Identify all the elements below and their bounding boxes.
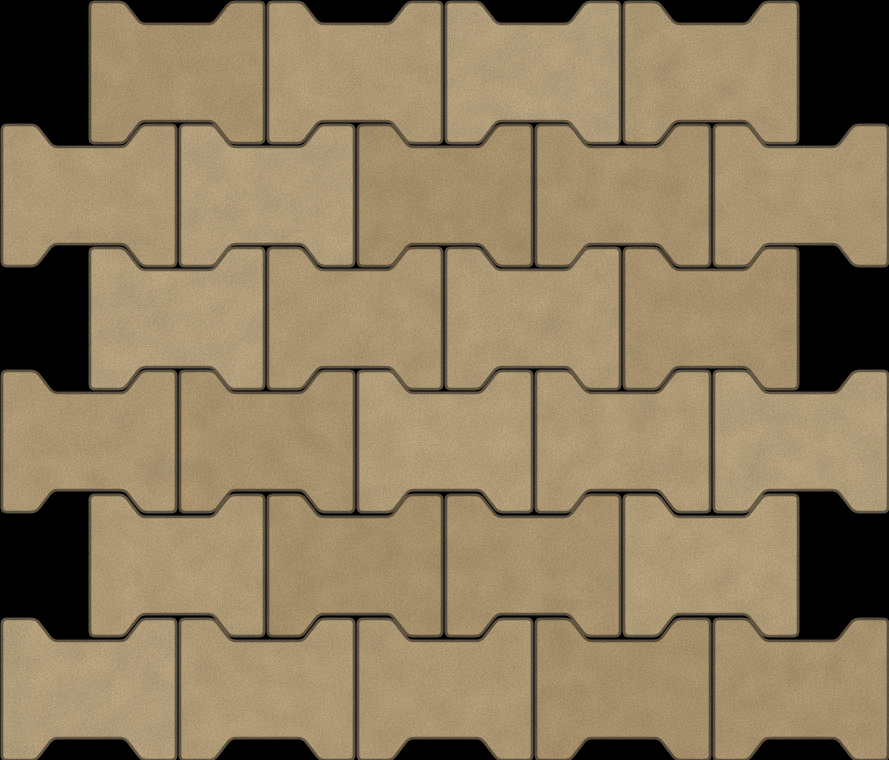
paver-pattern-image [0,0,889,760]
paver-r4-c5 [714,371,888,512]
paver-r6-c4 [536,619,710,760]
paver-r3-c4 [624,248,798,389]
paver-r2-c1 [2,125,176,266]
paver-r4-c4 [536,371,710,512]
paver-r2-c2 [180,125,354,266]
paver-r5-c4 [624,495,798,636]
paver-r4-c1 [2,371,176,512]
paver-r2-c4 [536,125,710,266]
paver-r5-c3 [446,495,620,636]
paver-r1-c4 [624,2,798,143]
paver-r2-c5 [714,125,888,266]
paver-r3-c3 [446,248,620,389]
paver-r6-c1 [2,619,176,760]
paver-r6-c2 [180,619,354,760]
paver-r2-c3 [358,125,532,266]
paver-r1-c2 [268,2,442,143]
paver-r3-c2 [268,248,442,389]
paver-r6-c3 [358,619,532,760]
paver-r4-c3 [358,371,532,512]
paver-grid [0,0,889,760]
paver-r5-c2 [268,495,442,636]
paver-r6-c5 [714,619,888,760]
paver-r3-c1 [90,248,264,389]
paver-r1-c1 [90,2,264,143]
paver-r1-c3 [446,2,620,143]
paver-r4-c2 [180,371,354,512]
paver-r5-c1 [90,495,264,636]
